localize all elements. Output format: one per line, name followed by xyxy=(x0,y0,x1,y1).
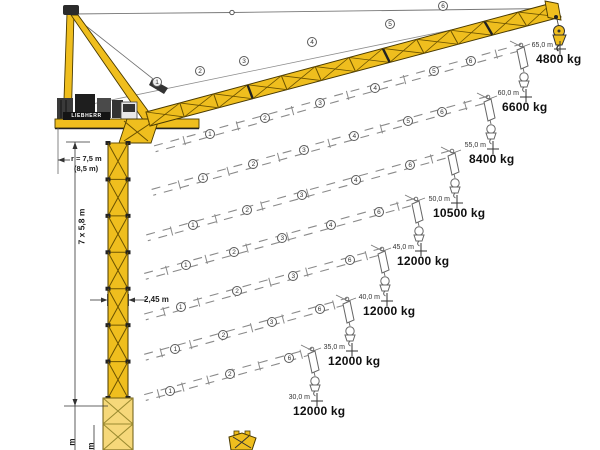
jib-section-marker: 1 xyxy=(205,129,215,139)
jib-section-marker: 2 xyxy=(232,286,242,296)
jib-section-marker: 1 xyxy=(176,302,186,312)
jib-section-marker: 2 xyxy=(229,247,239,257)
radius-label: 55,0 m xyxy=(442,142,486,150)
jib-section-marker: 5 xyxy=(385,19,395,29)
jib-section-marker: 1 xyxy=(198,173,208,183)
jib-section-marker: 4 xyxy=(349,131,359,141)
radius-label: 60,0 m xyxy=(475,90,519,98)
radius-label: 40,0 m xyxy=(336,294,380,302)
capacity-label: 12000 kg xyxy=(328,355,380,367)
jib-section-marker: 6 xyxy=(315,304,325,314)
jib-section-marker: 2 xyxy=(218,330,228,340)
radius-label: 30,0 m xyxy=(266,394,310,402)
jib-section-marker: 6 xyxy=(345,255,355,265)
dim-cut-label-2: m xyxy=(88,442,96,449)
jib-section-marker: 3 xyxy=(288,271,298,281)
jib-section-marker: 1 xyxy=(152,77,162,87)
radius-label: 65,0 m xyxy=(509,42,553,50)
jib-section-marker: 4 xyxy=(370,83,380,93)
jib-section-marker: 3 xyxy=(315,98,325,108)
jib-section-marker: 2 xyxy=(225,369,235,379)
jib-section-marker: 1 xyxy=(165,386,175,396)
jib-section-marker: 2 xyxy=(195,66,205,76)
jib-section-marker: 4 xyxy=(307,37,317,47)
dim-tail-radius: r = 7,5 m xyxy=(71,154,102,163)
jib-section-marker: 2 xyxy=(242,205,252,215)
capacity-label: 4800 kg xyxy=(536,53,581,65)
jib-section-marker: 3 xyxy=(277,233,287,243)
dim-tail-radius-alt: (8,5 m) xyxy=(74,164,98,173)
jib-section-marker: 4 xyxy=(351,175,361,185)
jib-section-marker: 6 xyxy=(438,1,448,11)
jib-section-marker: 3 xyxy=(299,145,309,155)
labels-layer: r = 7,5 m (8,5 m) 7 x 5,8 m 2,45 m m m 6… xyxy=(0,0,600,450)
jib-section-marker: 1 xyxy=(170,344,180,354)
capacity-label: 12000 kg xyxy=(397,255,449,267)
capacity-label: 6600 kg xyxy=(502,101,547,113)
jib-section-marker: 6 xyxy=(405,160,415,170)
jib-section-marker: 6 xyxy=(374,207,384,217)
crane-load-diagram: LIEBHERR r = 7,5 m (8,5 m) 7 x 5,8 m 2,4… xyxy=(0,0,600,450)
jib-section-marker: 3 xyxy=(267,317,277,327)
jib-section-marker: 4 xyxy=(326,220,336,230)
jib-section-marker: 6 xyxy=(437,107,447,117)
capacity-label: 8400 kg xyxy=(469,153,514,165)
radius-label: 50,0 m xyxy=(406,196,450,204)
jib-section-marker: 1 xyxy=(188,220,198,230)
jib-section-marker: 3 xyxy=(297,190,307,200)
jib-section-marker: 2 xyxy=(260,113,270,123)
jib-section-marker: 6 xyxy=(466,56,476,66)
dim-cut-label-1: m xyxy=(69,438,77,445)
jib-section-marker: 2 xyxy=(248,159,258,169)
capacity-label: 12000 kg xyxy=(293,405,345,417)
capacity-label: 12000 kg xyxy=(363,305,415,317)
radius-label: 35,0 m xyxy=(301,344,345,352)
jib-section-marker: 6 xyxy=(284,353,294,363)
radius-label: 45,0 m xyxy=(370,244,414,252)
dim-tower-sections: 7 x 5,8 m xyxy=(78,199,87,255)
capacity-label: 10500 kg xyxy=(433,207,485,219)
jib-section-marker: 5 xyxy=(429,66,439,76)
jib-section-marker: 1 xyxy=(181,260,191,270)
dim-tower-width: 2,45 m xyxy=(144,295,169,304)
jib-section-marker: 5 xyxy=(403,116,413,126)
jib-section-marker: 3 xyxy=(239,56,249,66)
